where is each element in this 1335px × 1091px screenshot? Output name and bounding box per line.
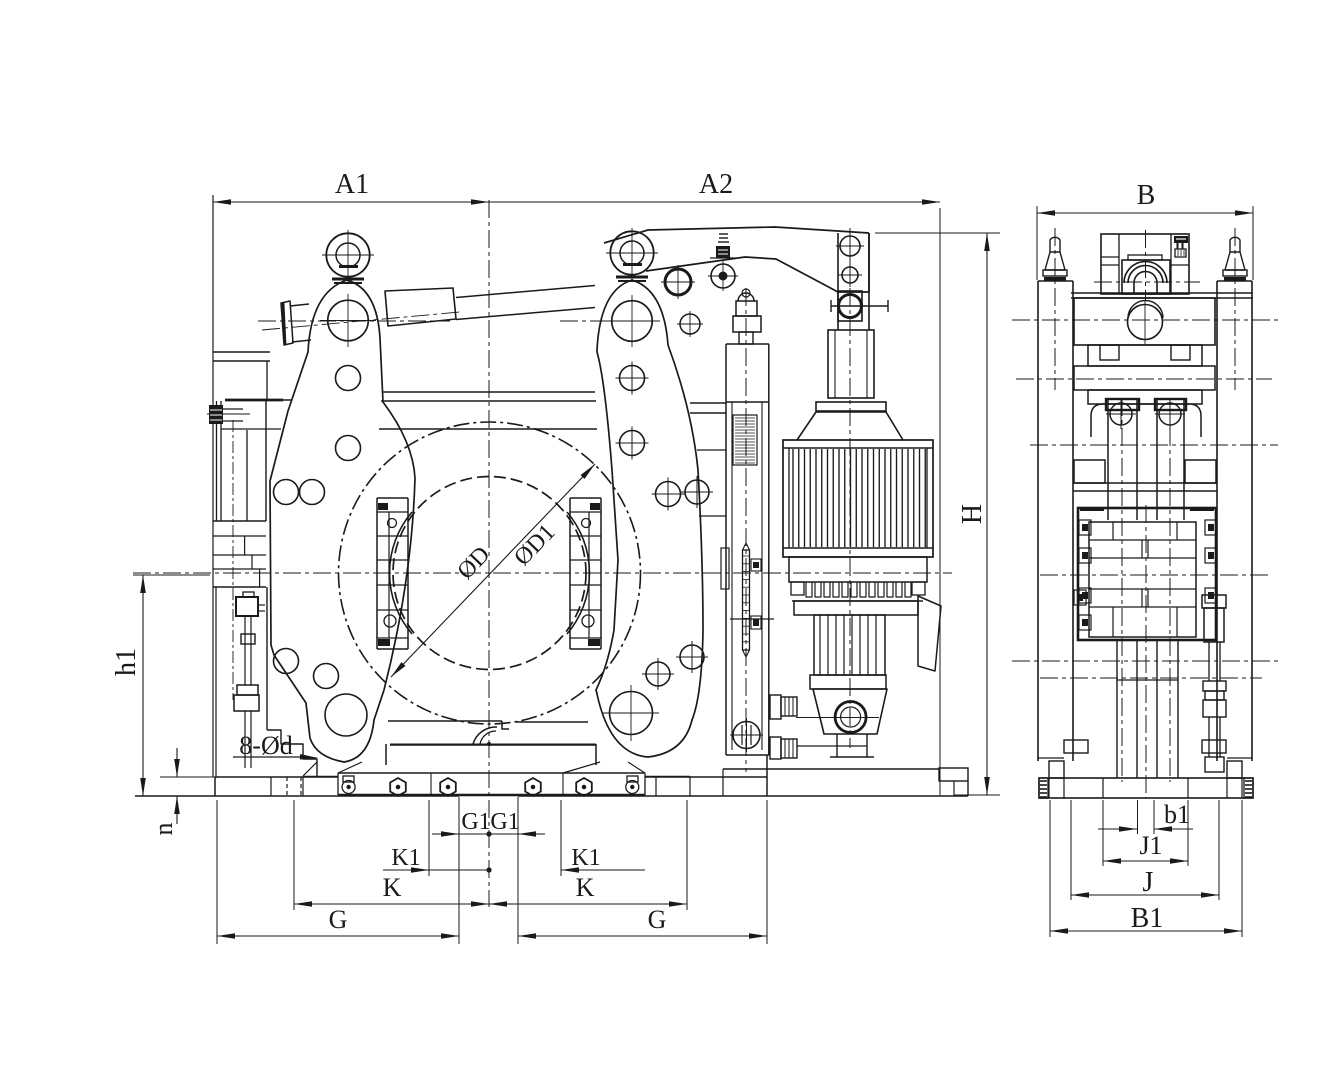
svg-text:A2: A2 <box>699 169 733 200</box>
svg-text:n: n <box>149 823 178 836</box>
svg-text:H: H <box>957 504 988 524</box>
svg-text:b1: b1 <box>1164 800 1190 829</box>
svg-text:h1: h1 <box>111 648 142 676</box>
svg-text:K1: K1 <box>391 845 420 871</box>
svg-text:B1: B1 <box>1131 903 1164 934</box>
svg-text:J1: J1 <box>1139 831 1162 860</box>
svg-text:G: G <box>329 905 348 934</box>
svg-text:K1: K1 <box>571 845 600 871</box>
svg-text:G1: G1 <box>490 809 519 835</box>
svg-text:G1: G1 <box>461 809 490 835</box>
svg-text:K: K <box>383 873 402 902</box>
svg-text:G: G <box>648 905 667 934</box>
svg-text:K: K <box>576 873 595 902</box>
svg-text:A1: A1 <box>335 169 369 200</box>
svg-text:8-Ød: 8-Ød <box>239 731 292 760</box>
svg-text:B: B <box>1137 180 1156 211</box>
svg-text:J: J <box>1143 867 1154 898</box>
